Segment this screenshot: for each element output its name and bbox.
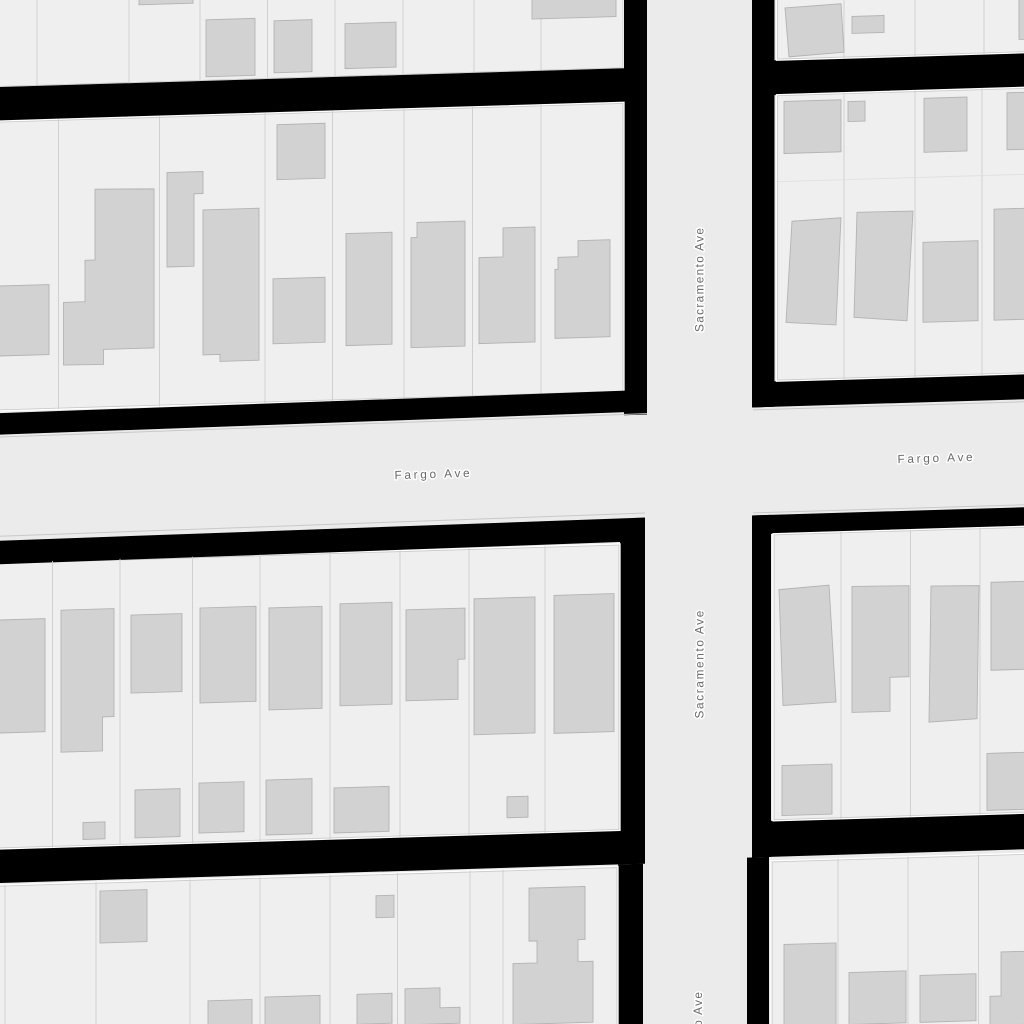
svg-text:Sacramento Ave: Sacramento Ave xyxy=(691,991,705,1024)
svg-text:Sacramento Ave: Sacramento Ave xyxy=(693,227,707,332)
svg-text:Fargo Ave: Fargo Ave xyxy=(897,450,975,466)
svg-text:Fargo Ave: Fargo Ave xyxy=(394,466,472,482)
svg-text:Sacramento Ave: Sacramento Ave xyxy=(693,609,707,718)
